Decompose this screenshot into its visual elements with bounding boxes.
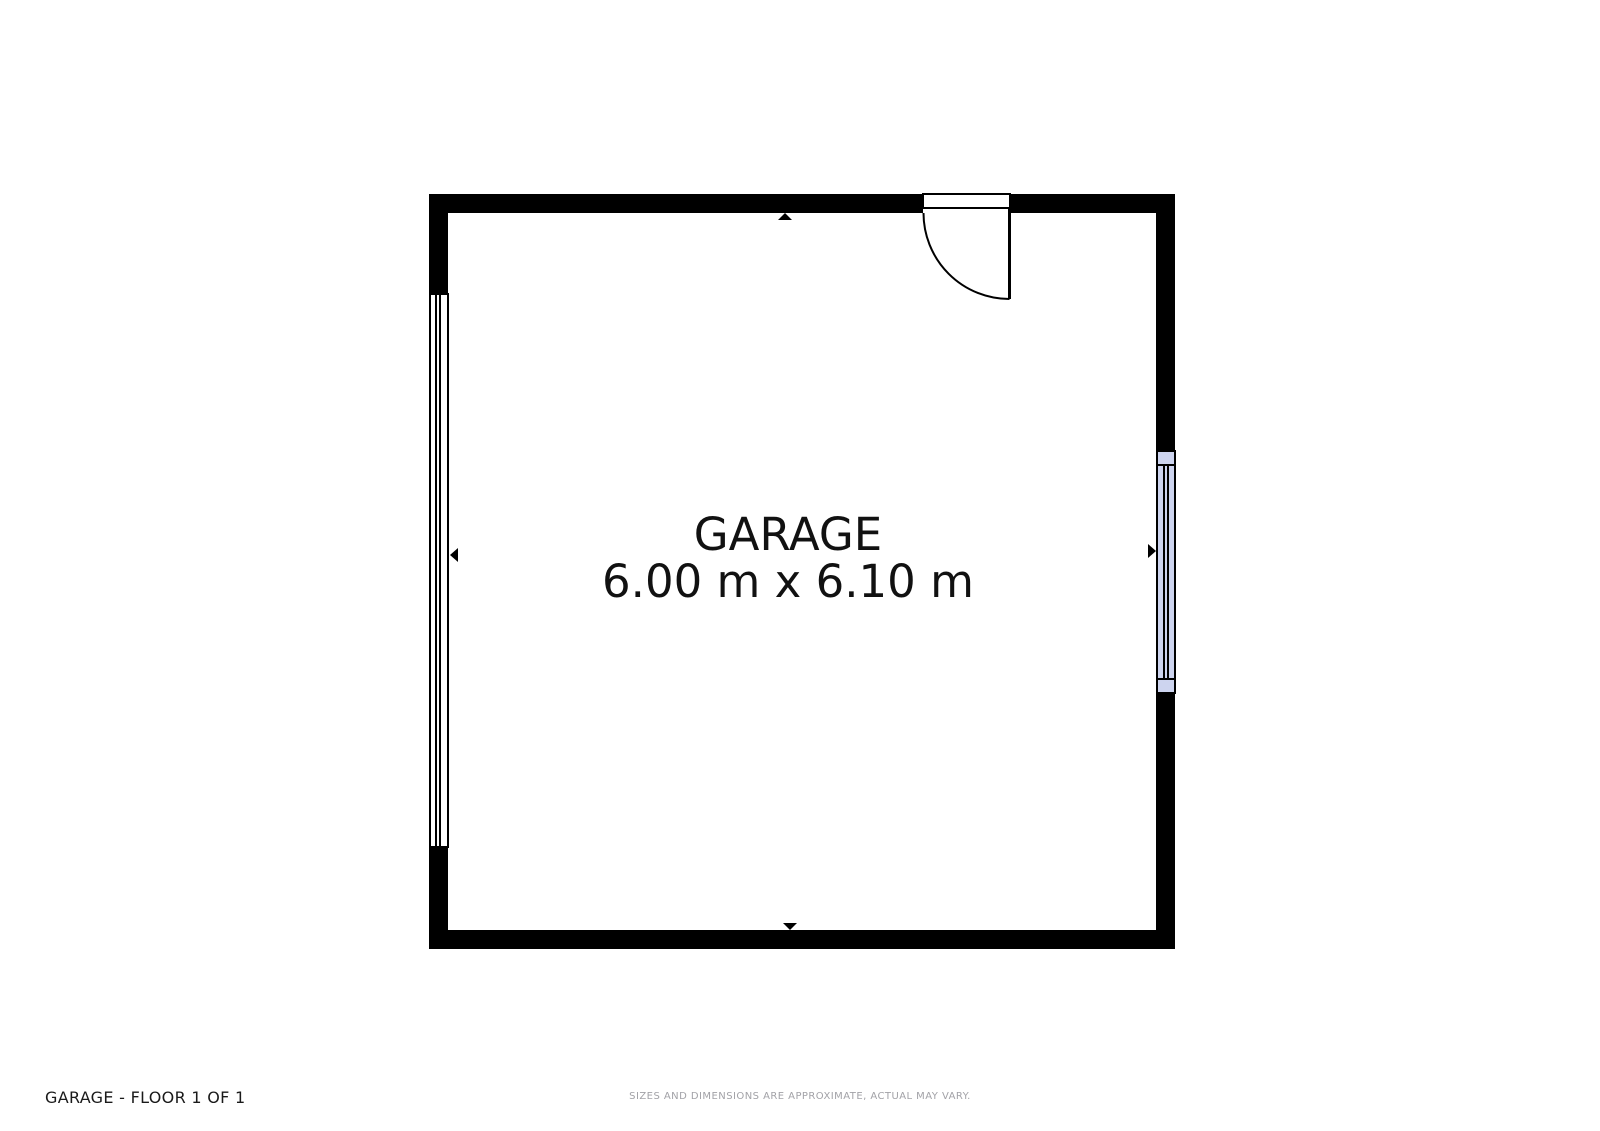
wall-bottom [429, 930, 1175, 949]
east-arrow-icon [1148, 544, 1156, 558]
window-right-sill-top [1158, 464, 1174, 466]
wall-top [429, 194, 1175, 213]
footer-disclaimer: SIZES AND DIMENSIONS ARE APPROXIMATE, AC… [0, 1091, 1600, 1102]
door-swing-arc-icon [918, 206, 1018, 306]
window-left-glazing-line [435, 295, 437, 846]
window-right-glazing-line [1167, 466, 1169, 678]
room-label-block: GARAGE 6.00 m x 6.10 m [438, 512, 1138, 605]
south-arrow-icon [783, 923, 797, 930]
window-right-glazing-line [1163, 466, 1165, 678]
window-right [1156, 450, 1176, 694]
room-name: GARAGE [438, 512, 1138, 558]
floorplan-canvas: GARAGE 6.00 m x 6.10 m GARAGE - FLOOR 1 … [0, 0, 1600, 1131]
north-arrow-icon [778, 213, 792, 220]
window-right-sill-bottom [1158, 678, 1174, 680]
room-dimensions: 6.00 m x 6.10 m [438, 558, 1138, 605]
